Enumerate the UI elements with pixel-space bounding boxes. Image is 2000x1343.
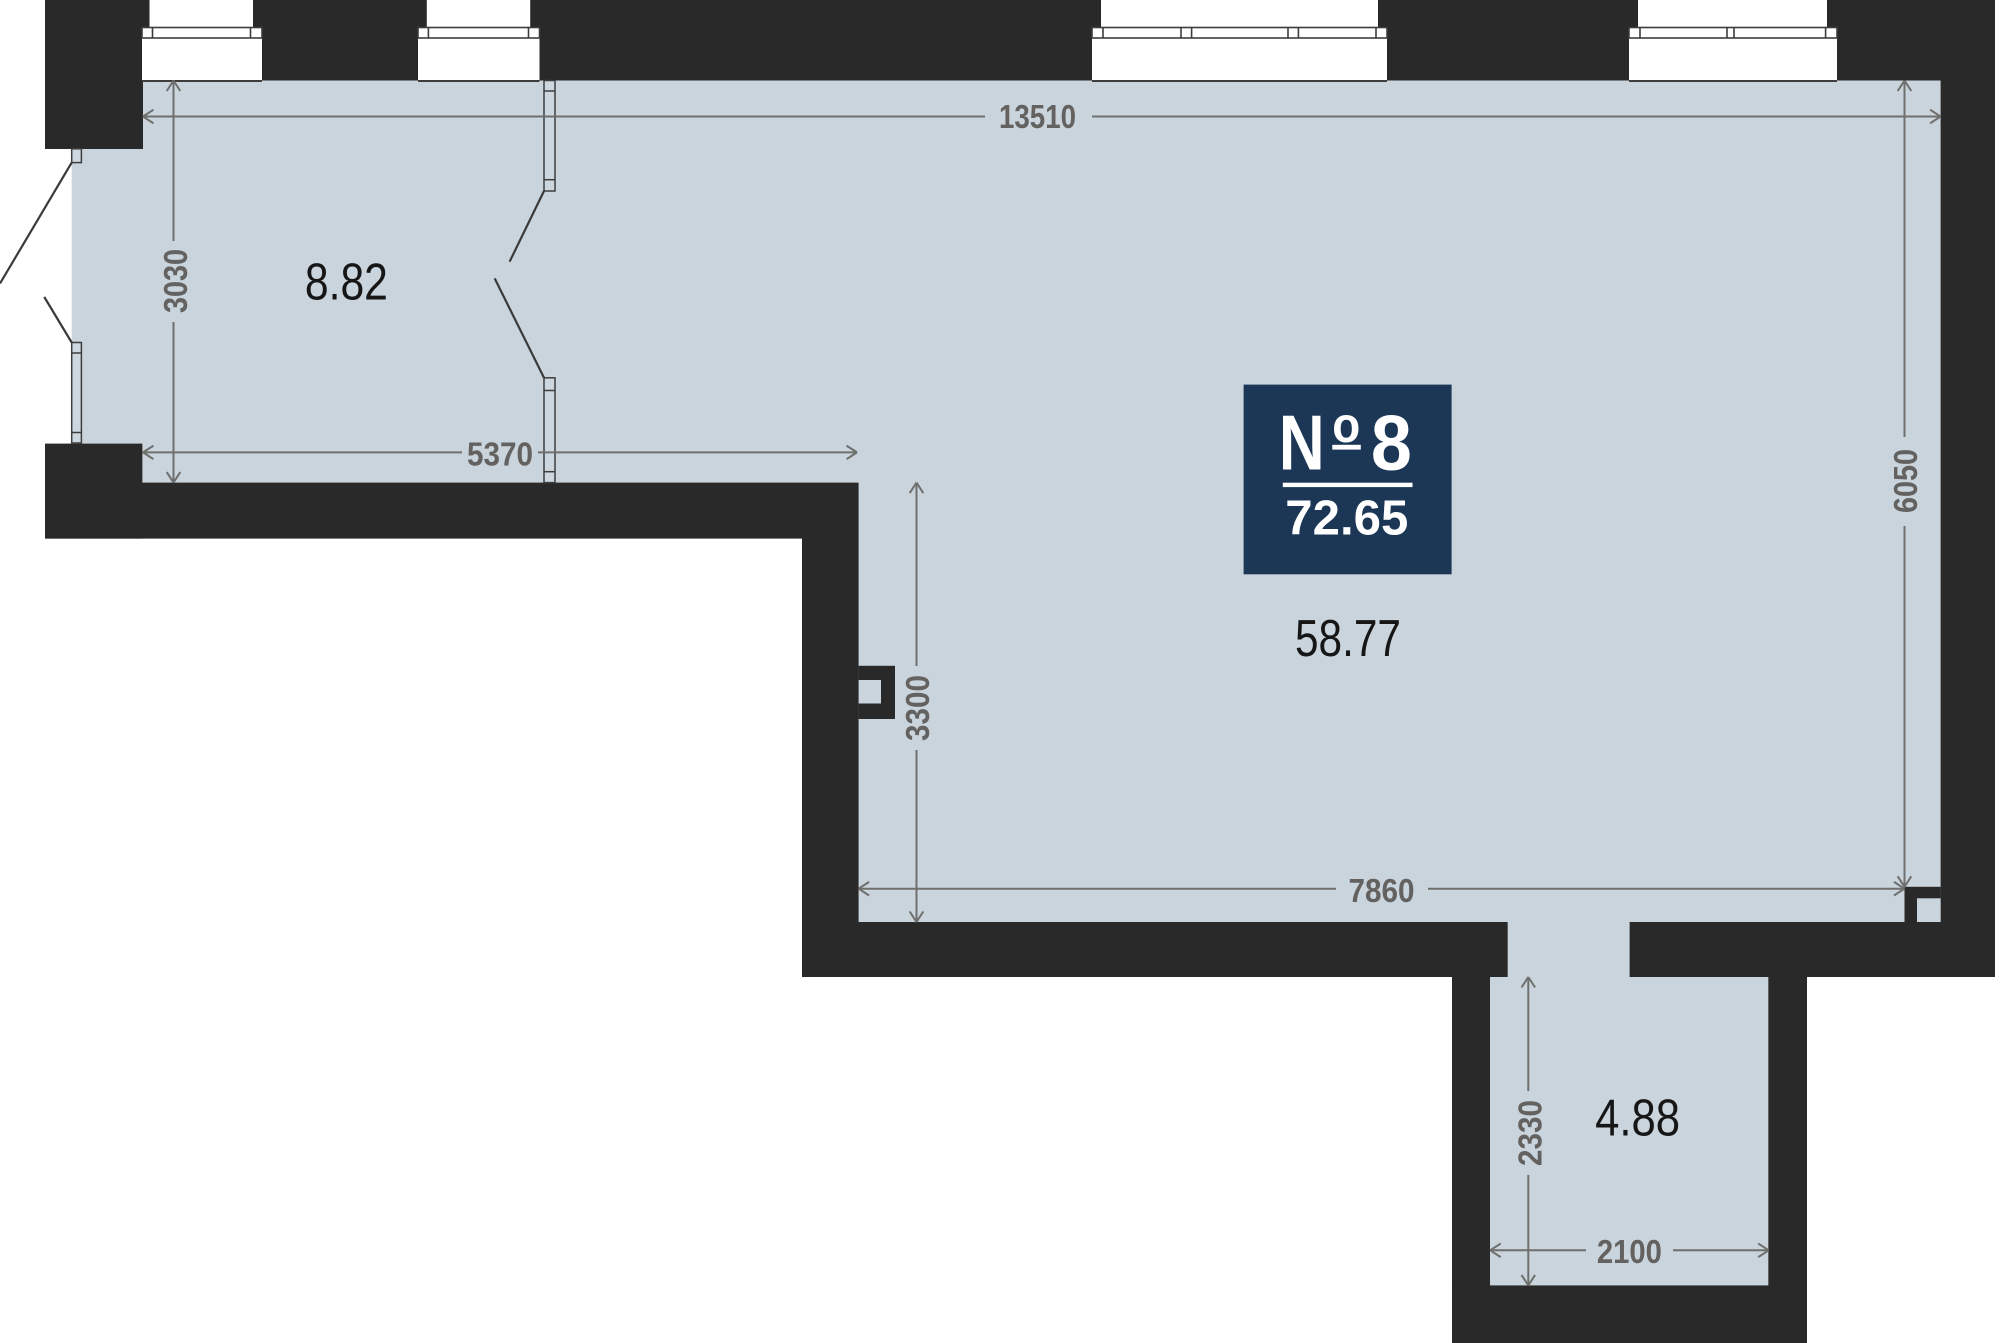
svg-text:6050: 6050 bbox=[1887, 449, 1924, 513]
svg-text:8.82: 8.82 bbox=[305, 253, 388, 311]
svg-text:4.88: 4.88 bbox=[1595, 1089, 1680, 1147]
svg-text:72.65: 72.65 bbox=[1285, 491, 1408, 545]
svg-text:3300: 3300 bbox=[899, 675, 936, 741]
svg-text:2330: 2330 bbox=[1512, 1100, 1549, 1166]
svg-text:58.77: 58.77 bbox=[1295, 609, 1401, 667]
svg-text:N: N bbox=[1279, 399, 1325, 487]
svg-text:13510: 13510 bbox=[999, 98, 1076, 135]
svg-text:8: 8 bbox=[1371, 399, 1412, 487]
svg-text:2100: 2100 bbox=[1597, 1233, 1662, 1270]
svg-text:3030: 3030 bbox=[157, 249, 194, 313]
svg-text:7860: 7860 bbox=[1349, 872, 1415, 909]
svg-text:5370: 5370 bbox=[467, 436, 533, 473]
